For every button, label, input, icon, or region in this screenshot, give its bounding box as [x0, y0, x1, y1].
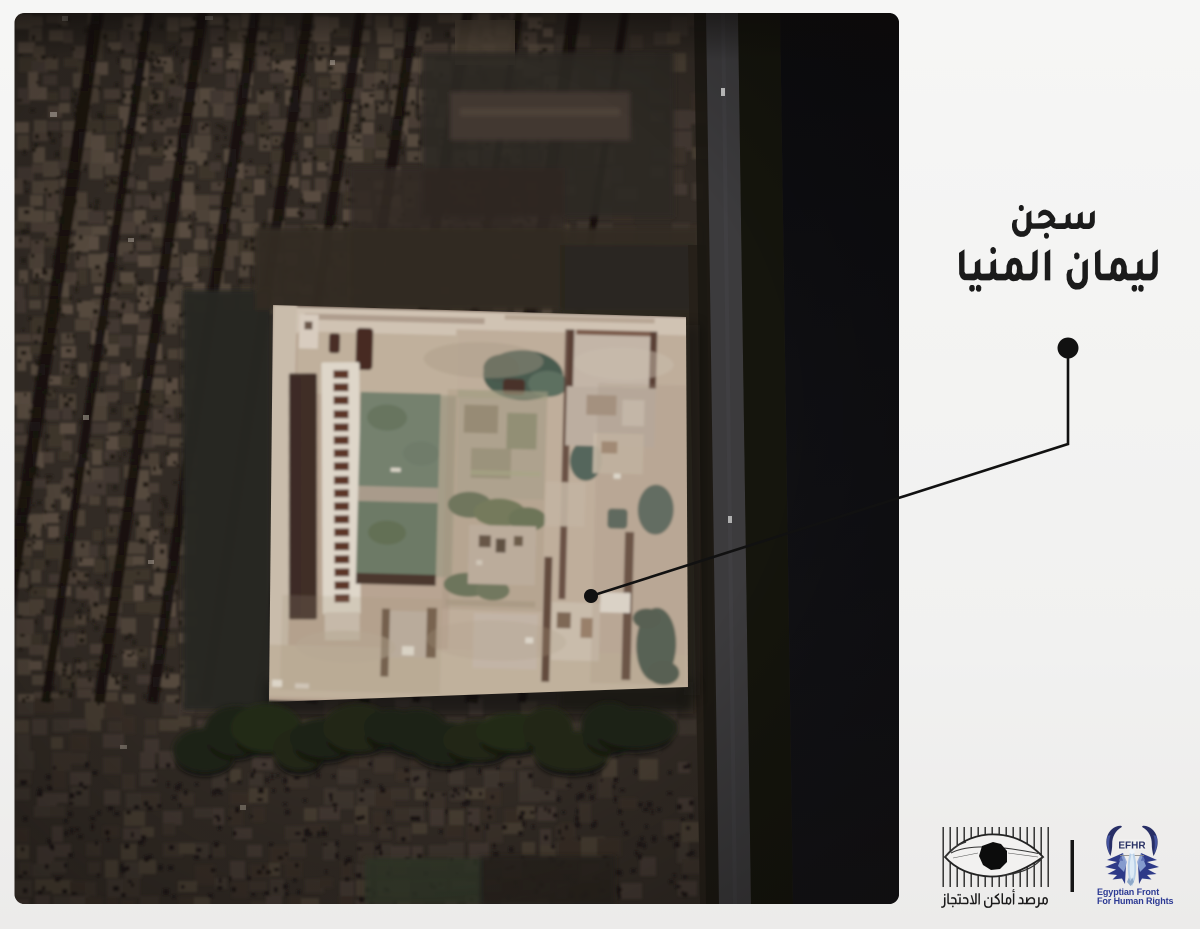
svg-text:For Human Rights: For Human Rights: [1097, 896, 1173, 906]
svg-text:EFHR: EFHR: [1118, 841, 1146, 852]
